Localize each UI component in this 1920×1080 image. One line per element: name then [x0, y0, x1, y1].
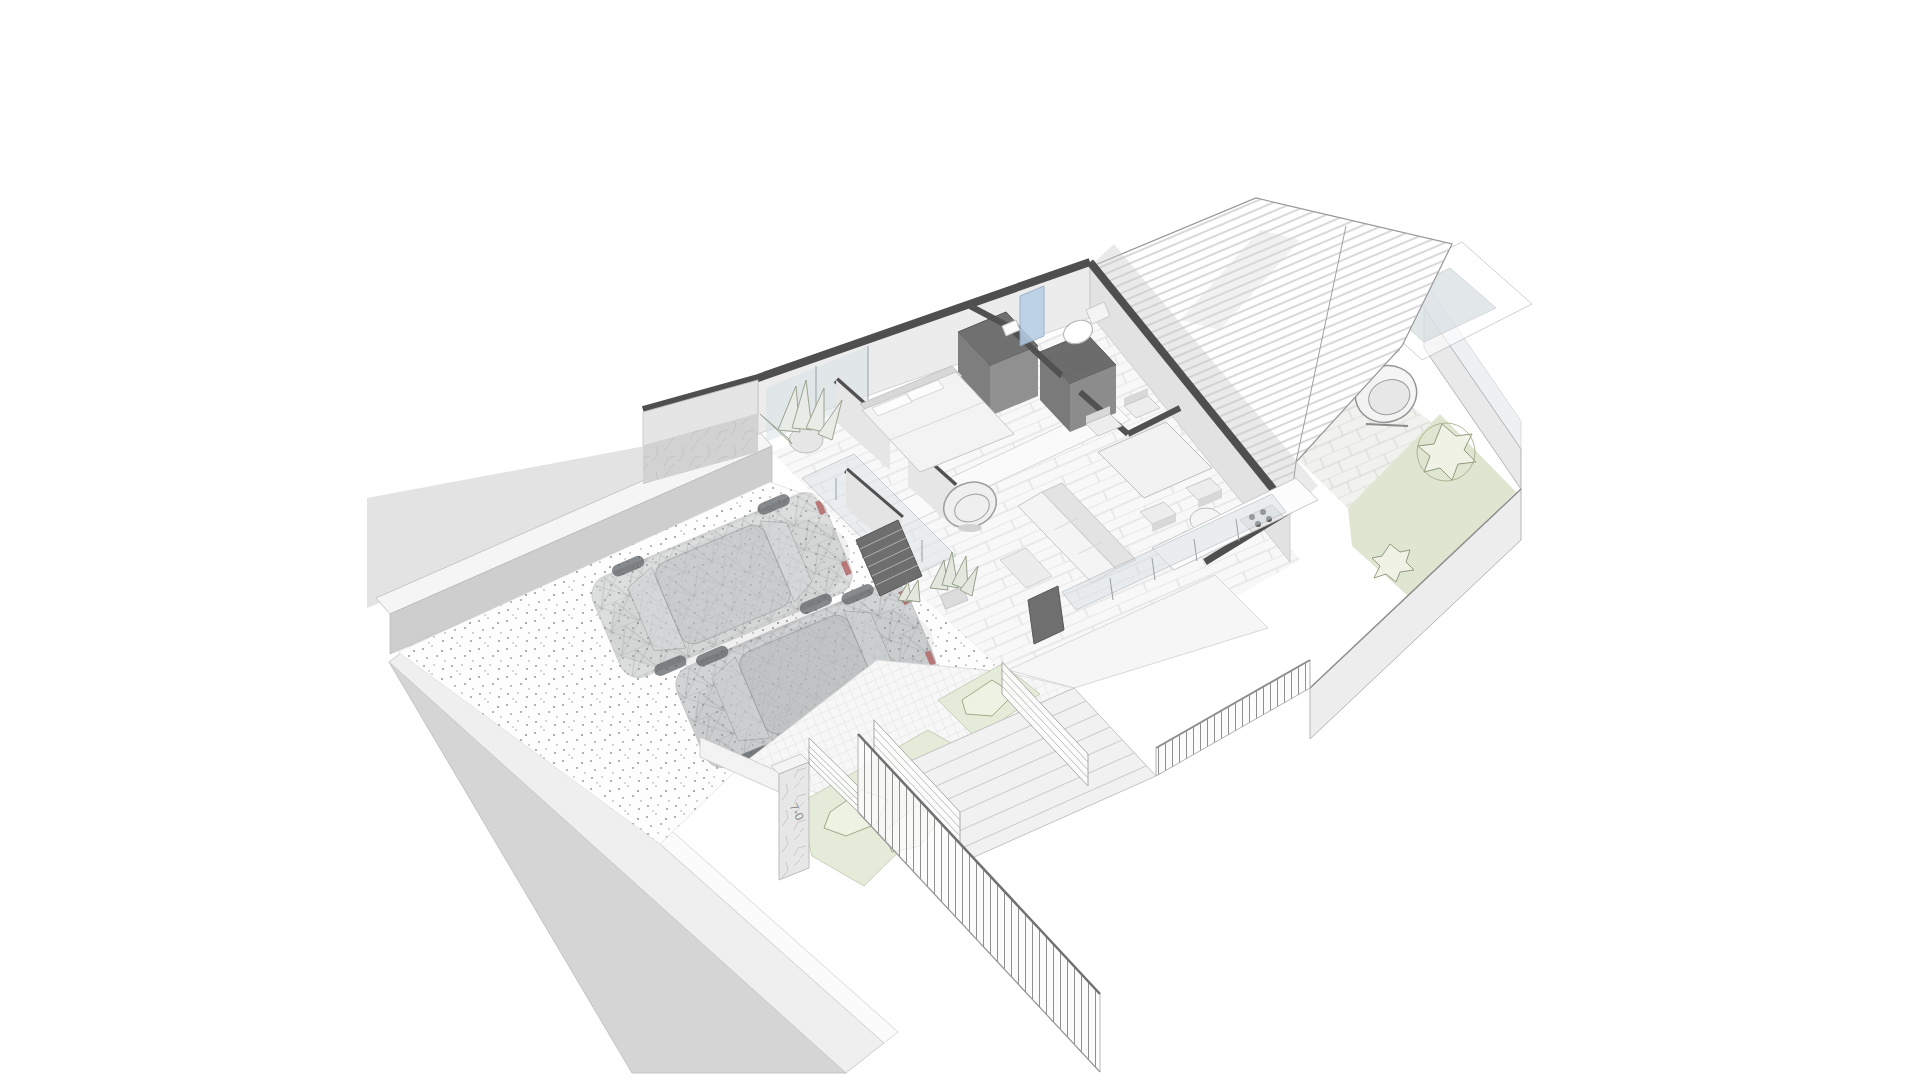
fence-slats — [1156, 660, 1310, 776]
axonometric-house-cutaway: 7-0 — [0, 0, 1920, 1080]
lounge-chair-base — [958, 524, 982, 532]
scene-root: 7-0 — [367, 198, 1532, 1073]
shower-glass — [1020, 286, 1044, 346]
fence-top-rail — [1156, 660, 1310, 748]
side-fence — [1156, 660, 1310, 776]
site-plan-rendering: 7-0 — [0, 0, 1920, 1080]
